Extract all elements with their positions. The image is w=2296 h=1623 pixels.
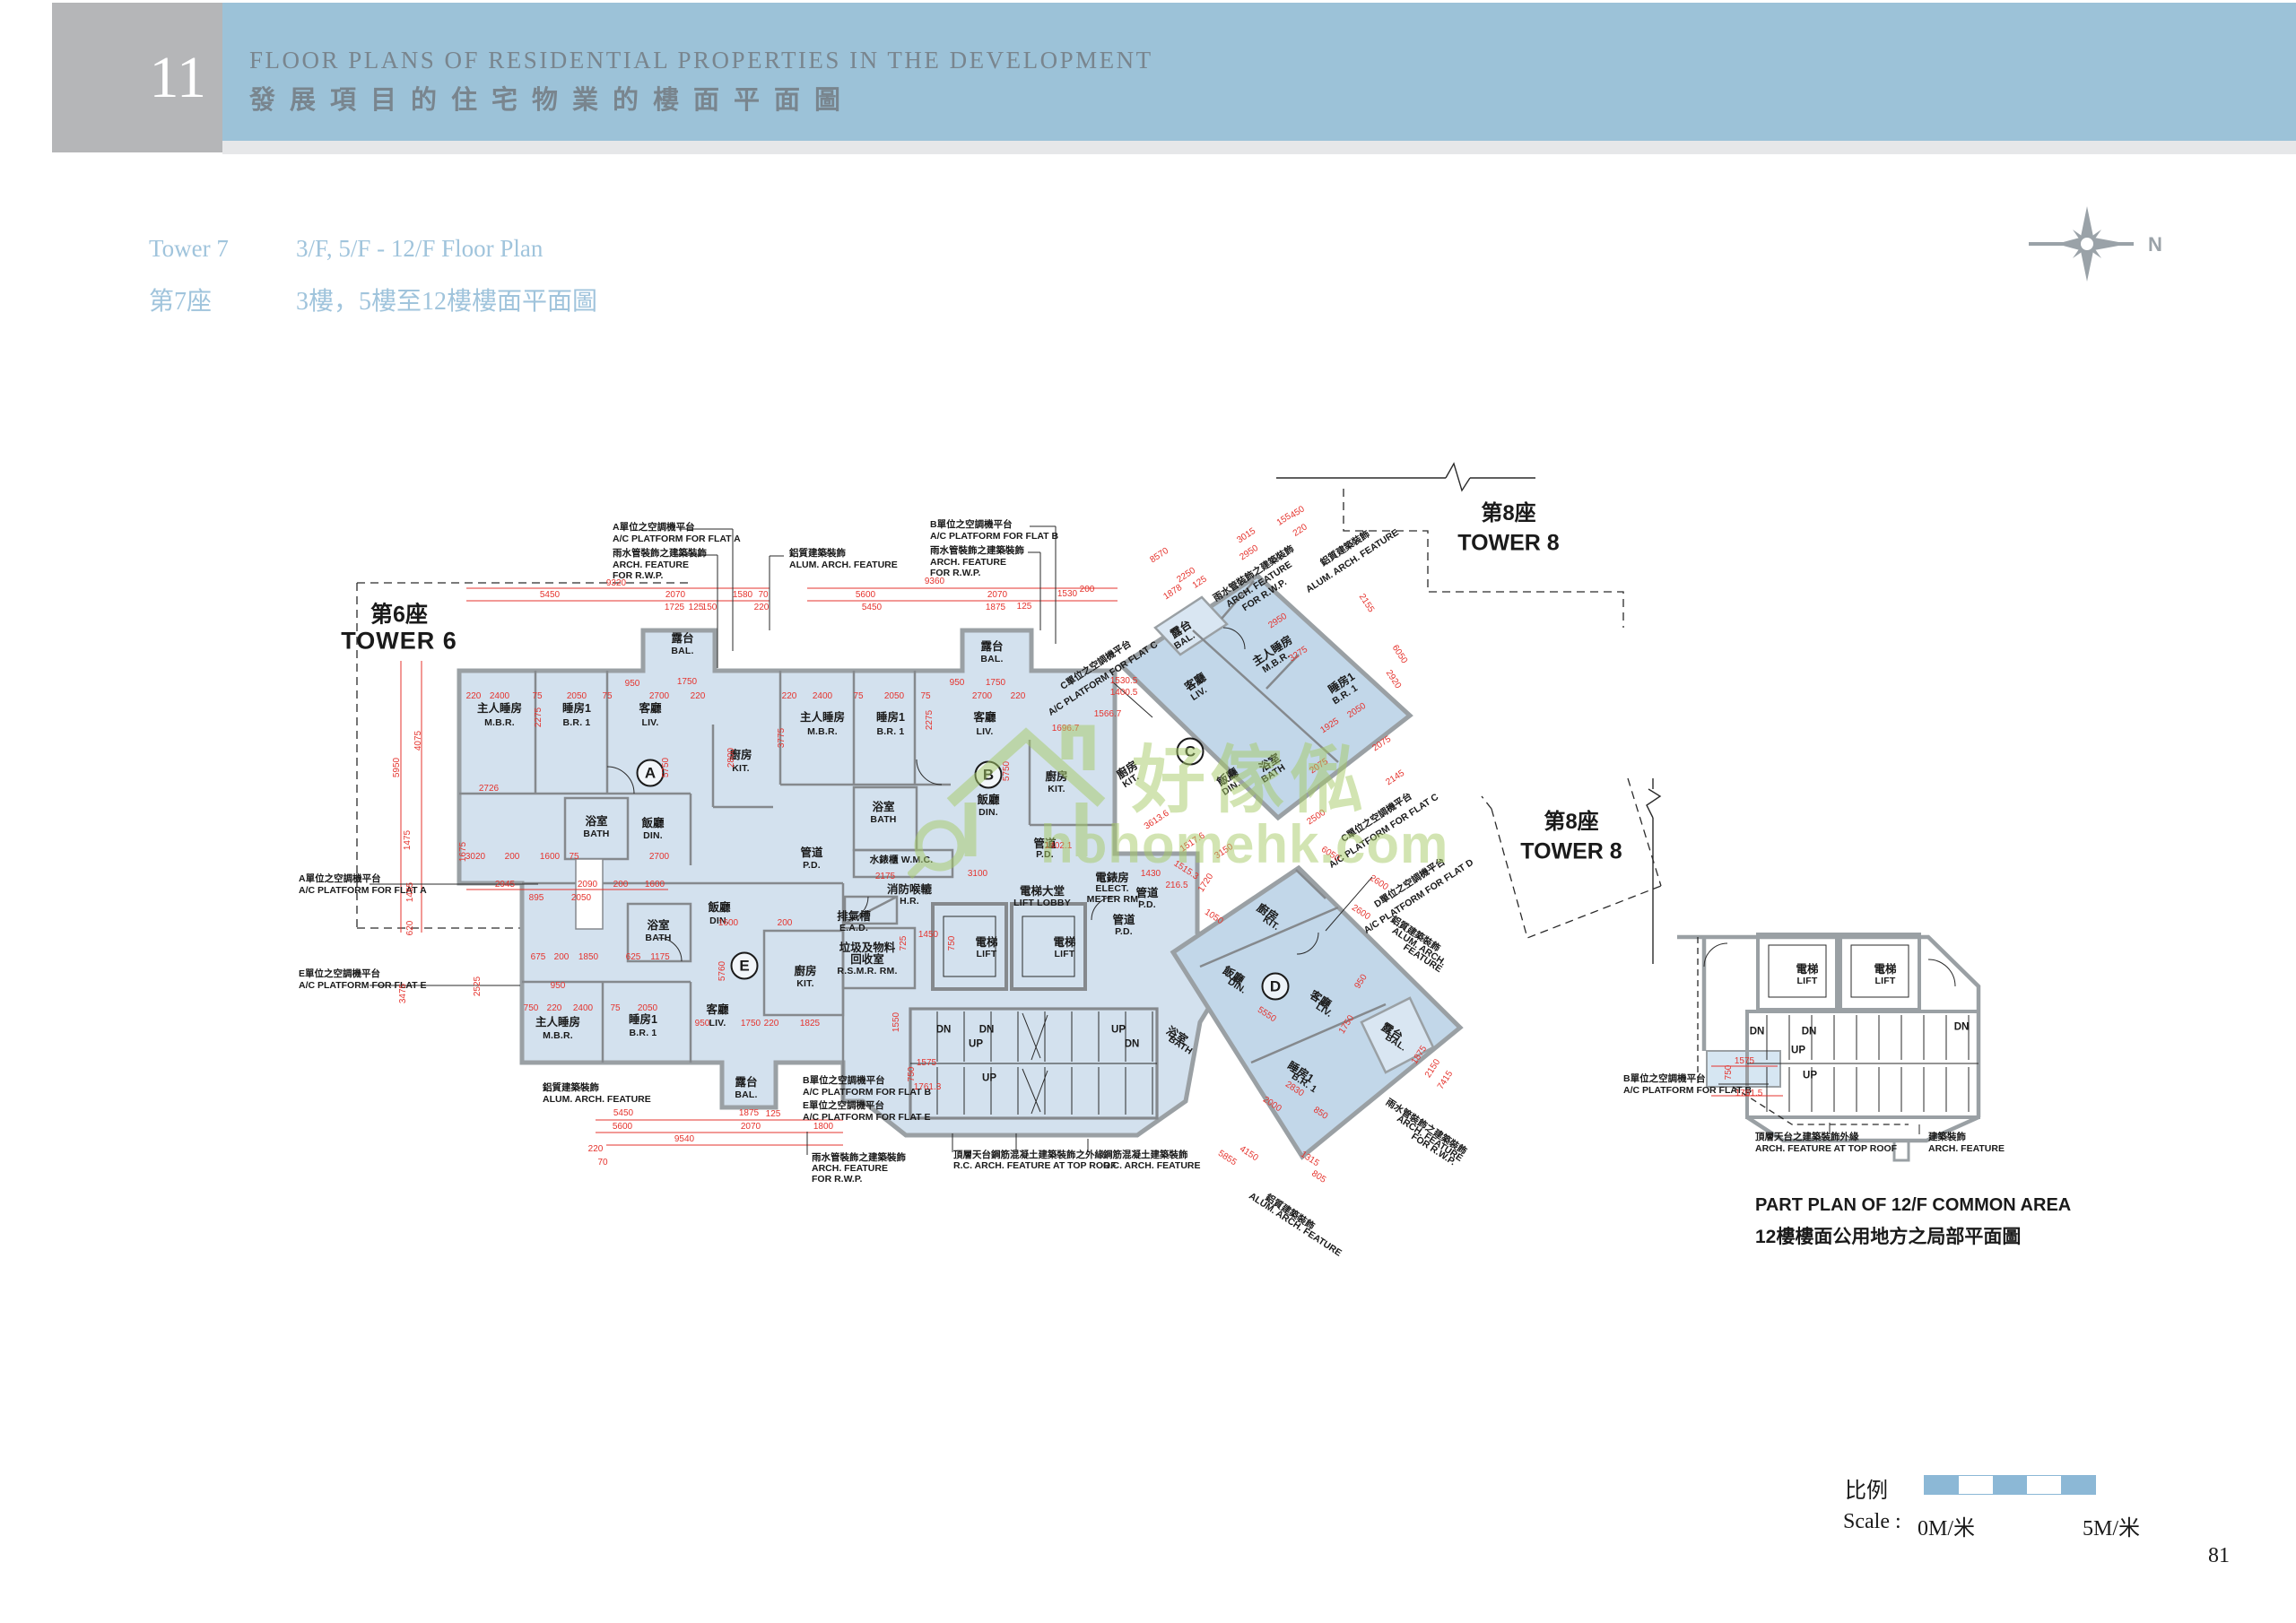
part-plan-title-en: PART PLAN OF 12/F COMMON AREA [1755, 1195, 2071, 1216]
scale-label-zh: 比例 [1845, 1472, 1888, 1504]
page-number: 81 [2208, 1544, 2230, 1568]
scale-label-en: Scale : [1843, 1510, 1901, 1534]
brochure-page: 11 FLOOR PLANS OF RESIDENTIAL PROPERTIES… [0, 0, 2296, 1623]
scale-bar-segment [2027, 1476, 2061, 1494]
tower8-top-boundary [1276, 464, 1623, 628]
part-plan-title-zh: 12樓樓面公用地方之局部平面圖 [1755, 1222, 2021, 1249]
part-plan [1677, 934, 1979, 1160]
tower8-mid-boundary [1482, 778, 1661, 964]
scale-bar [1924, 1475, 2096, 1495]
scale-bar-segment [2061, 1476, 2095, 1494]
scale-bar-segment [1993, 1476, 2027, 1494]
scale-end-label: 5M/米 [2083, 1510, 2140, 1541]
scale-bar-segment [1925, 1476, 1959, 1494]
floor-plan-drawing [0, 0, 2296, 1623]
scale-start-label: 0M/米 [1918, 1510, 1975, 1541]
scale-bar-segment [1959, 1476, 1993, 1494]
